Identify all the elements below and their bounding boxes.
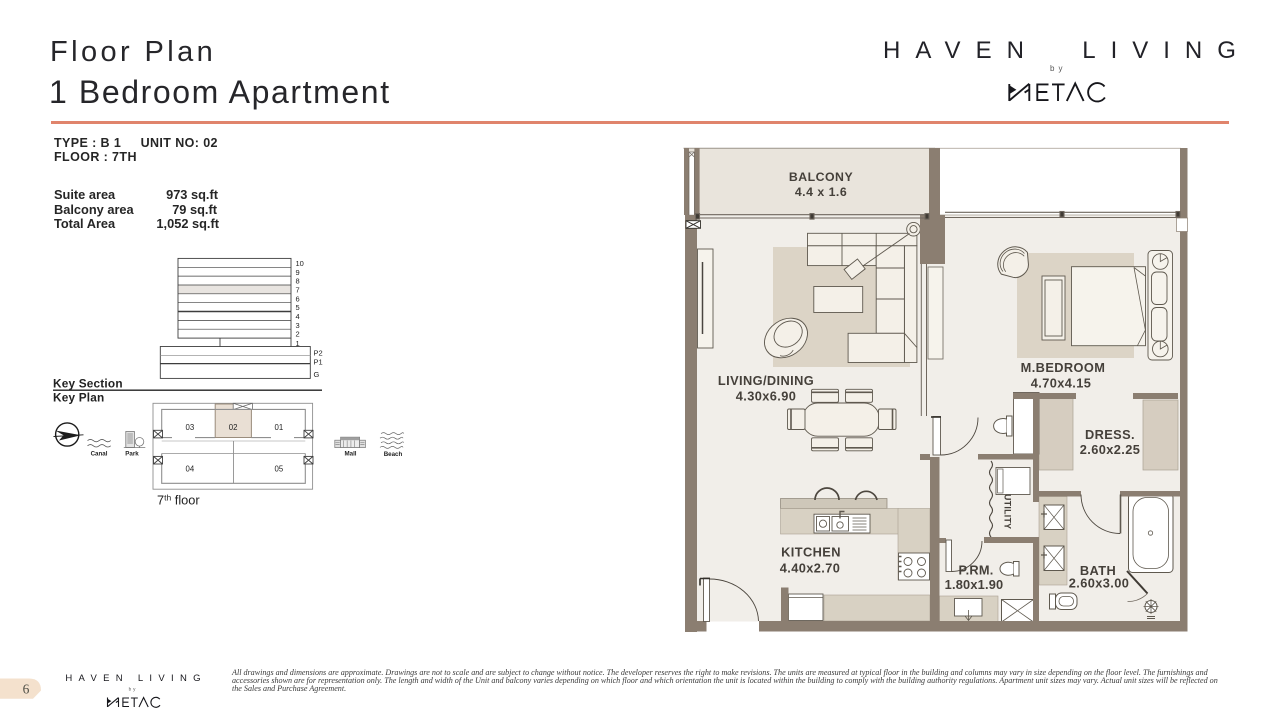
svg-text:by: by	[129, 687, 138, 692]
svg-text:6: 6	[23, 682, 30, 697]
svg-text:HAVEN LIVING: HAVEN LIVING	[65, 673, 206, 684]
